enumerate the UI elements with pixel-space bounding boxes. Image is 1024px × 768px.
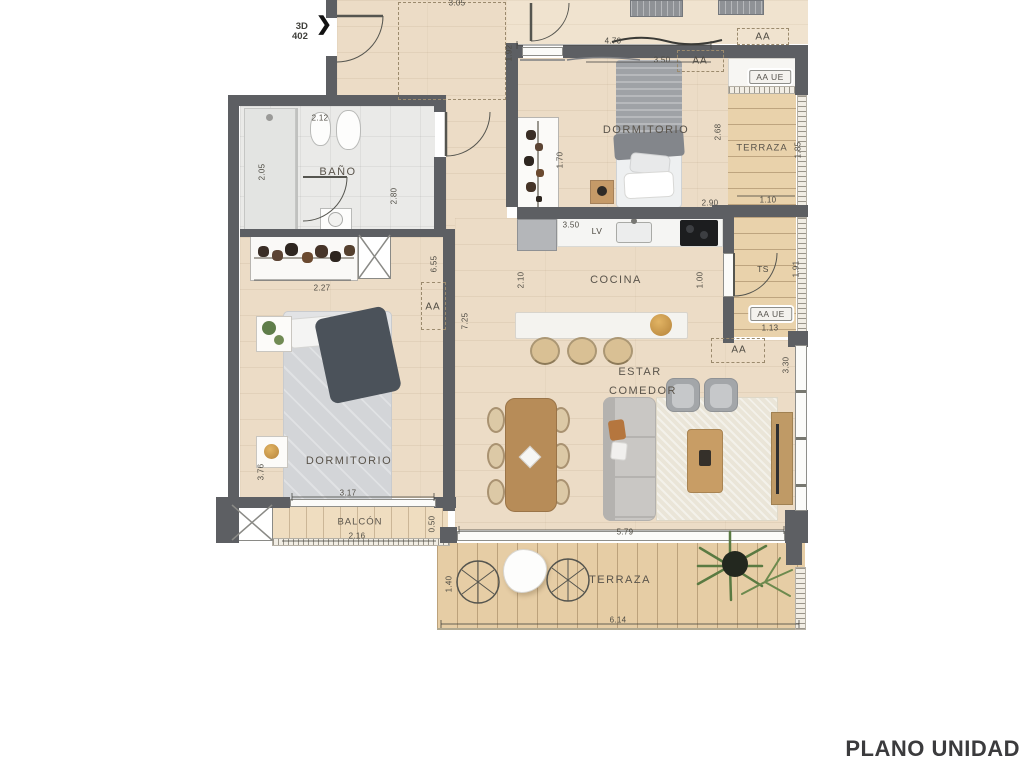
dimension-label: 2.68 <box>714 124 723 141</box>
palm-plant <box>698 532 792 600</box>
floor-plan: 3D 402 ❯ BAÑODORMITORIOTERRAZACOCINALVTS… <box>0 0 1024 768</box>
floor-plan-page: 3D 402 ❯ BAÑODORMITORIOTERRAZACOCINALVTS… <box>0 0 1024 768</box>
unit-marker: 3D 402 ❯ <box>292 22 308 42</box>
dimension-label: 1.00 <box>696 272 705 289</box>
label-comedor: COMEDOR <box>609 385 677 397</box>
dimension-label: 5.79 <box>617 528 634 537</box>
label-aa: AA <box>731 345 746 356</box>
label-lv: LV <box>592 226 603 236</box>
unit-marker-line2: 402 <box>292 32 308 42</box>
dimension-label: 3.50 <box>563 221 580 230</box>
wire-chair <box>457 561 499 603</box>
label-dormitorio: DORMITORIO <box>603 124 689 136</box>
label-ba-o: BAÑO <box>319 166 356 178</box>
dimension-label: 2.05 <box>258 164 267 181</box>
shaft-x-marks <box>232 235 390 540</box>
dimension-label: 2.80 <box>390 188 399 205</box>
label-cocina: COCINA <box>590 274 642 286</box>
dimension-label: 2.12 <box>312 114 329 123</box>
dimension-label: 1.91 <box>792 261 801 278</box>
dimension-label: 3.50 <box>654 56 671 65</box>
dimension-label: 1.13 <box>762 324 779 333</box>
unit-arrow-icon: ❯ <box>316 20 332 30</box>
dimension-label: 1.85 <box>794 142 803 159</box>
dimension-label: 6.55 <box>430 256 439 273</box>
label-aa: AA <box>692 56 707 67</box>
dimension-label: 3.17 <box>340 489 357 498</box>
label-terraza: TERRAZA <box>589 574 651 586</box>
dimension-label: 4.70 <box>605 37 622 46</box>
dimension-label: 1.10 <box>760 196 777 205</box>
dimension-label: 7.25 <box>461 313 470 330</box>
label-aa: AA <box>755 32 770 43</box>
dimension-label: 1.40 <box>445 576 454 593</box>
dimension-label: 0.50 <box>428 516 437 533</box>
dimension-label: 2.90 <box>702 199 719 208</box>
curtain-line <box>520 58 640 61</box>
label-aa-ue: AA UE <box>749 70 791 84</box>
label-balc-n: BALCÓN <box>337 517 382 528</box>
dimension-label: 3.76 <box>257 464 266 481</box>
planter-squiggle <box>612 38 722 45</box>
plan-title: PLANO UNIDAD <box>845 736 1020 762</box>
label-aa-ue: AA UE <box>750 307 792 321</box>
dimension-label: 3.05 <box>449 0 466 8</box>
dimension-label: 2.16 <box>349 532 366 541</box>
dimension-label: 6.14 <box>610 616 627 625</box>
door-swings <box>303 3 777 296</box>
label-estar: ESTAR <box>618 366 661 378</box>
dimension-label: 3.30 <box>782 357 791 374</box>
label-aa: AA <box>425 302 440 313</box>
label-ts: TS <box>757 264 769 274</box>
dimension-label: 2.27 <box>314 284 331 293</box>
wire-chair <box>547 559 589 601</box>
label-terraza: TERRAZA <box>736 143 787 154</box>
dimension-label: 1.92 <box>505 45 514 62</box>
dimension-label: 1.70 <box>556 152 565 169</box>
dimension-label: 2.10 <box>517 272 526 289</box>
linework-overlay <box>0 0 1024 768</box>
label-dormitorio: DORMITORIO <box>306 455 392 467</box>
